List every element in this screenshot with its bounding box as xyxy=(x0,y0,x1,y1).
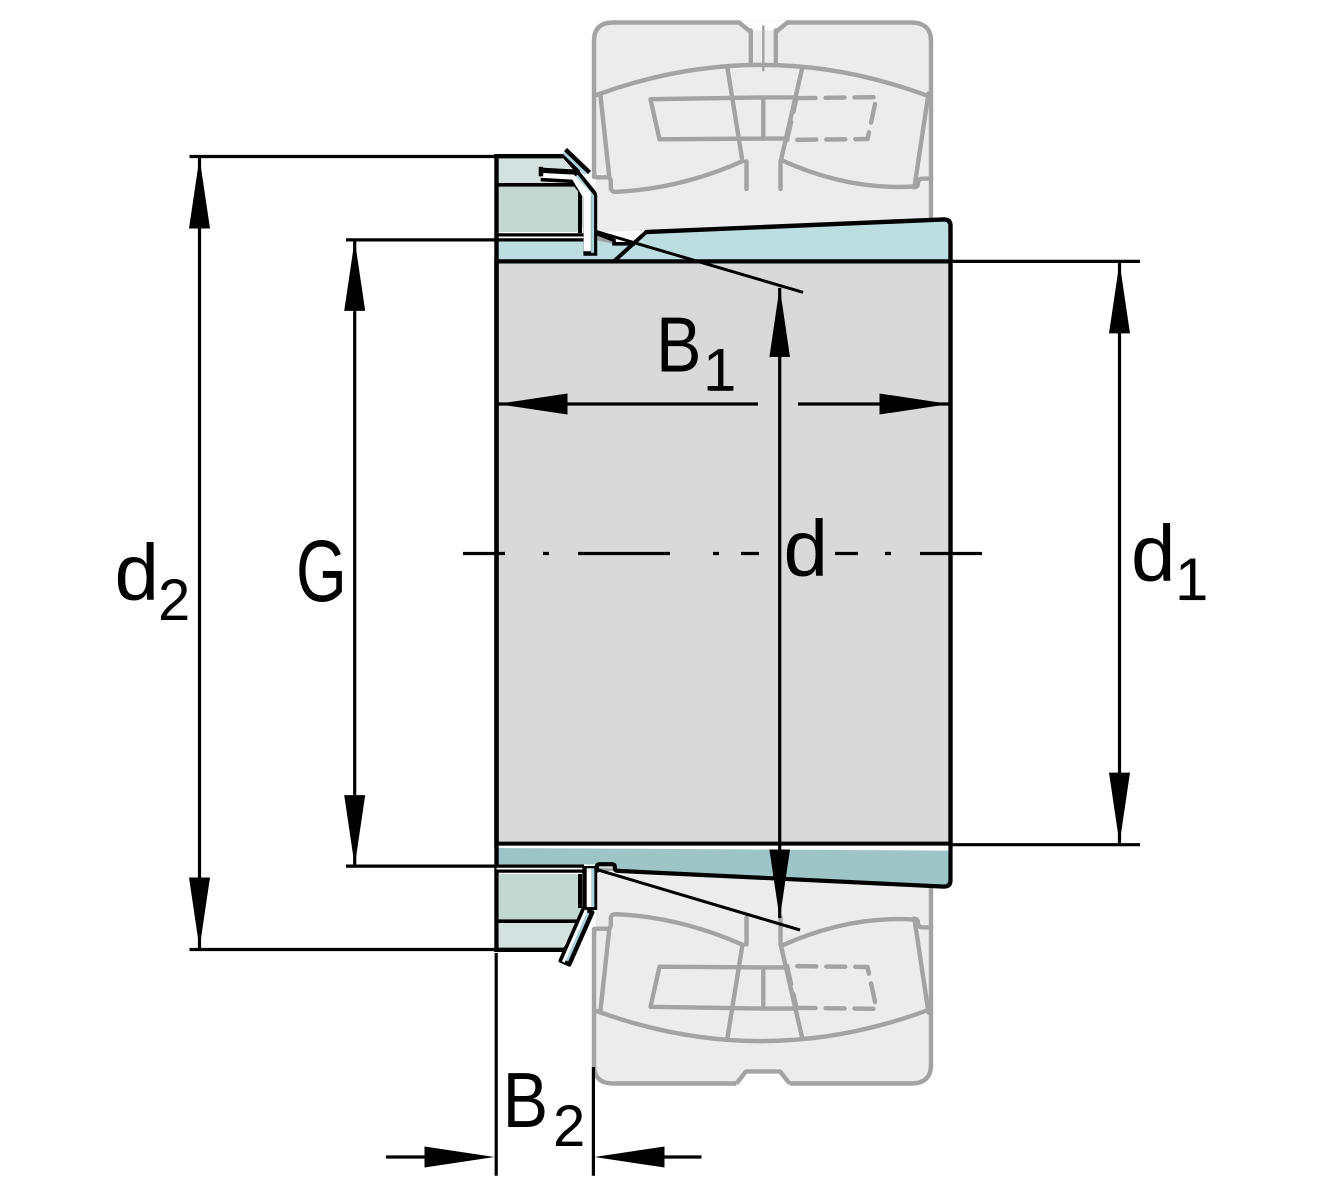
svg-text:2: 2 xyxy=(158,568,190,633)
svg-text:d: d xyxy=(784,504,829,593)
svg-text:G: G xyxy=(296,523,347,620)
svg-text:1: 1 xyxy=(703,337,736,404)
svg-text:1: 1 xyxy=(1175,546,1208,613)
svg-text:B: B xyxy=(656,301,702,388)
svg-text:2: 2 xyxy=(553,1094,585,1159)
svg-text:d: d xyxy=(115,528,160,617)
svg-text:B: B xyxy=(503,1057,549,1144)
svg-text:d: d xyxy=(1131,509,1176,598)
